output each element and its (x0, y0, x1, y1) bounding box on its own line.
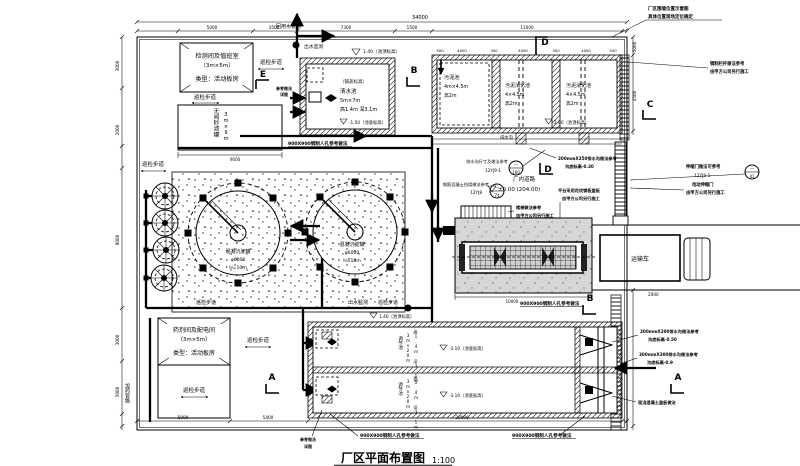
coag-tank2-name: 混凝沉淀罐 (339, 241, 364, 248)
title-text: 厂区平面布置图 (341, 450, 425, 465)
digest-pool2-size: 4×4.5m (566, 92, 586, 98)
svg-text:C: C (647, 100, 654, 110)
coag-tank1-h: H=10m (229, 265, 247, 271)
dewatering-machine (452, 242, 595, 273)
retractable-gate (615, 142, 626, 216)
svg-text:300mmX300排水沟做法参考: 300mmX300排水沟做法参考 (639, 351, 699, 358)
manhole-note-platform: 900X900钢制人孔参考做法 (520, 300, 584, 307)
svg-text:由甲方公司另行施工: 由甲方公司另行施工 (686, 189, 725, 196)
callout-ditch-ref: 排水沟尺寸及做法参考 12YJ9-1 — 100 (466, 150, 545, 175)
clear-pool-cover: （铺盖标高） (340, 78, 367, 85)
svg-text:钢制栏杆做法参考: 钢制栏杆做法参考 (710, 60, 745, 67)
reuse-pipe-label: 回用水管路 (276, 23, 301, 30)
dim-right-2: 4500 (632, 90, 637, 101)
sludge-pool-block: 污泥池 4m×4.5m 高2m 污泥消化池 4×4.5m 高2m 污泥消化池 4… (432, 48, 622, 133)
coagulation-tank-area: 混凝沉淀罐 φ6000 H=10m 混凝沉淀罐 φ6000 H=10m (172, 172, 409, 312)
clear-water-pool: 1.40（池顶标高） （铺盖标高） 清水池 5m×7m 高1.4m 深3.1m … (290, 48, 400, 135)
svg-text:由甲方公司另行施工: 由甲方公司另行施工 (710, 68, 749, 75)
svg-text:巡检步道: 巡检步道 (142, 160, 165, 168)
monitor-point-dot (293, 42, 300, 49)
section-marker-E: E 参考做法 详图 (256, 70, 292, 97)
coag-tank2-dia: φ6000 (345, 250, 360, 256)
section-marker-C: C (643, 100, 656, 119)
dosing-tank-icon (153, 237, 179, 263)
svg-text:D: D (541, 38, 548, 48)
walkway-label-4: 巡检步道 (196, 299, 216, 306)
walkway-label-1: 巡检步道 (192, 93, 219, 103)
section-marker-B-top: B (407, 66, 420, 86)
svg-text:电动伸缩门: 电动伸缩门 (692, 181, 714, 188)
walkway-label-7: 巡检步道 (245, 336, 271, 347)
svg-text:200mmX250排水沟做法参考: 200mmX250排水沟做法参考 (558, 155, 618, 162)
outlet-monitor-dot (405, 305, 412, 312)
dosing-tank-icon (152, 183, 178, 209)
section-marker-A-left: A (266, 373, 279, 393)
dosing-pipe-label: 加药管路 (124, 382, 130, 404)
transport-truck: 运输车 (600, 235, 710, 281)
svg-text:A: A (269, 373, 276, 383)
pool-top-elev: 2.00（池顶标高） (554, 119, 589, 126)
svg-text:沟底标高-0.9: 沟底标高-0.9 (647, 359, 673, 366)
digest-pool1-height: 高2m (505, 100, 518, 107)
coag-tank1-dia: φ6000 (231, 257, 246, 263)
chemical-room-type: 类型：活动板房 (173, 349, 215, 357)
note-electric-gate: 电动伸缩门 由甲方公司另行施工 (630, 181, 725, 196)
chemical-room-size: （3m×5m） (177, 336, 210, 343)
reg-tank2-name: 调节池 (398, 381, 403, 396)
sand-filter-size: 3m×9m (223, 112, 229, 142)
monitor-room-name: 检测间及值班室 (195, 52, 238, 60)
svg-text:平台采用花纹钢板盖板: 平台采用花纹钢板盖板 (558, 187, 601, 194)
sludge-pool-height: 高2m (444, 92, 457, 99)
svg-text:详图: 详图 (304, 443, 312, 449)
platform-dim: 10000 (506, 299, 519, 304)
svg-text:900X900钢制人孔参考做法: 900X900钢制人孔参考做法 (520, 300, 580, 307)
title-scale: 1:100 (432, 456, 455, 465)
svg-text:100: 100 (512, 170, 520, 175)
monitor-room-building: 检测间及值班室 （3m×5m） 类型：活动板房 (180, 43, 253, 92)
section-marker-A-right: A (671, 373, 684, 393)
digest-pool1-name: 污泥消化池 (505, 82, 530, 89)
digest-pool2-name: 污泥消化池 (566, 82, 591, 89)
walkway-label-3: 巡检步道 (141, 160, 166, 171)
reg-tank1-size: 3m×20m (406, 333, 411, 363)
dewatering-platform: 10000 (443, 218, 595, 304)
svg-text:900X900钢制人孔参考做法: 900X900钢制人孔参考做法 (288, 140, 348, 147)
digest-pool2-height: 高2m (566, 100, 579, 107)
reg2-bottom-elev: -3.10（池底标高） (449, 392, 486, 399)
sand-filter-dim: 9000 (230, 157, 241, 162)
dim-right-3: 2000 (648, 292, 659, 297)
drawing-canvas: 34000 5000 3500 7300 1500 11000 3000 200… (0, 0, 800, 466)
note-railing: 钢制栏杆做法参考 由甲方公司另行施工 (628, 60, 749, 75)
dim-pool-4: 4000 (518, 48, 528, 53)
dim-pool-1: 500 (436, 48, 444, 53)
digest-pool1-size: 4×4.5m (505, 92, 525, 98)
svg-text:伸缩门做法可参考: 伸缩门做法可参考 (685, 163, 721, 170)
detail-note-small-1b: 详图 (280, 91, 288, 97)
dim-top-total: 34000 (412, 15, 428, 21)
dim-pool-2: 4000 (457, 48, 467, 53)
outlet-monitor-label: 出水监测 (348, 299, 368, 306)
svg-text:900X900钢制人孔参考做法: 900X900钢制人孔参考做法 (360, 432, 420, 439)
access-road: 运输车 (592, 225, 800, 290)
callout-gate-num: 41 (749, 174, 755, 179)
dim-left-4: 3000 (115, 334, 120, 345)
detail-note-small-1: 参考做法 (275, 85, 292, 91)
sand-filter-name: 无阀砂滤罐 (212, 108, 219, 138)
svg-text:巡检步道: 巡检步道 (194, 93, 217, 101)
note-fence-location: 厂区围墙位置示意图 具体位置现场定位确定 (612, 5, 722, 37)
svg-text:74: 74 (494, 193, 500, 198)
svg-text:沟底标高-0.30: 沟底标高-0.30 (565, 163, 594, 170)
walkway-label-5: 巡检步道 (378, 299, 398, 306)
drain-channel-top: 排水沟 (432, 133, 622, 144)
svg-text:楼梯做法参考: 楼梯做法参考 (516, 204, 542, 211)
svg-text:B: B (587, 294, 594, 304)
svg-text:由甲方公司另行施工: 由甲方公司另行施工 (516, 212, 555, 219)
dim-pool-7: 500 (609, 48, 617, 53)
section-marker-D-mid: D (540, 163, 553, 175)
drain-ditch-label: 排水沟 (500, 134, 513, 141)
clear-pool-size: 5m×7m (340, 98, 360, 104)
note-ditch-200: 200mmX200排水沟做法参考 沟底标高-0.50 (612, 328, 700, 343)
dim-bottom-2: 5400 (263, 415, 274, 420)
sand-filter-tank: 无阀砂滤罐 3m×9m 9000 (178, 105, 282, 162)
dim-top-5: 11000 (520, 25, 534, 30)
dim-pool-3: 300 (490, 48, 498, 53)
svg-text:200mmX200排水沟做法参考: 200mmX200排水沟做法参考 (640, 328, 700, 335)
svg-text:12YJ8: 12YJ8 (470, 190, 482, 195)
monitor-room-type: 类型：活动板房 (195, 75, 238, 83)
svg-text:由甲方公司另行施工: 由甲方公司另行施工 (562, 195, 601, 202)
svg-text:参考做法: 参考做法 (299, 436, 316, 442)
dosing-tank-icon (152, 210, 178, 236)
coag-tank2-h: H=10m (343, 258, 361, 264)
reg-tank2-size: 3m×20m (406, 379, 411, 409)
svg-text:12YJ9-1: 12YJ9-1 (485, 168, 501, 173)
svg-text:巡检步道: 巡检步道 (247, 336, 270, 344)
manhole-note-mid: 900X900钢制人孔参考做法 (288, 140, 352, 147)
clear-pool-top-elev: 1.40（池顶标高） (363, 48, 400, 55)
svg-text:钢筋混凝土挡墙做法参考: 钢筋混凝土挡墙做法参考 (443, 181, 489, 188)
clear-pool-dims: 高1.4m 深3.1m (340, 106, 377, 113)
dim-top-1: 5000 (207, 25, 218, 30)
svg-text:现浇混凝土盖板做法: 现浇混凝土盖板做法 (638, 399, 677, 406)
reg-top-elev: 1.40（池顶标高） (379, 313, 414, 320)
coag-tank1-name: 混凝沉淀罐 (225, 248, 250, 255)
dim-left-3: 9000 (115, 234, 120, 245)
dosing-tank-icon (151, 265, 177, 291)
svg-text:A: A (675, 373, 682, 383)
svg-text:厂区围墙位置示意图: 厂区围墙位置示意图 (648, 5, 689, 12)
chemical-room-building: 药剂间及配电间 （3m×5m） 类型：活动板房 巡检步道 (158, 318, 230, 418)
dim-left-1: 3000 (115, 60, 120, 71)
note-platform-cover: 平台采用花纹钢板盖板 由甲方公司另行施工 (558, 187, 601, 218)
road-label: 厂内道路 (513, 175, 536, 183)
monitor-room-size: （3m×5m） (200, 62, 233, 69)
sludge-pool-size: 4m×4.5m (444, 84, 468, 90)
stairs (461, 206, 511, 218)
outlet-monitor-top: 出水监测 (304, 43, 323, 50)
drawing-title: 厂区平面布置图 1:100 (334, 450, 455, 465)
clear-pool-bottom-elev: -1.50（池底标高） (349, 119, 386, 126)
dim-left-5: 5000 (115, 386, 120, 397)
clear-pool-name: 清水池 (340, 87, 357, 95)
svg-text:沟底标高-0.50: 沟底标高-0.50 (648, 336, 677, 343)
note-ditch-300: 300mmX300排水沟做法参考 沟底标高-0.9 (620, 351, 699, 366)
road-elev: ±0.00 (204.00) (498, 187, 540, 193)
regulating-tank-block: 调节池 3m×20m 高1.4m 深3.1m 调节池 3m×20m 高1.4m … (308, 313, 622, 429)
svg-text:巡检步道: 巡检步道 (260, 58, 283, 66)
reg-tank1-name: 调节池 (398, 335, 403, 350)
svg-text:E: E (260, 70, 266, 80)
dim-left-2: 2000 (115, 124, 120, 135)
callout-gate-detail: 伸缩门做法可参考 12YJ9-1 — 41 (630, 163, 759, 180)
plant-layout-drawing: 34000 5000 3500 7300 1500 11000 3000 200… (0, 0, 800, 466)
dim-pool-6: 4000 (581, 48, 591, 53)
walkway-label-2: 巡检步道 (258, 58, 284, 69)
sludge-pool-name: 污泥池 (444, 73, 460, 81)
reg1-bottom-elev: -3.10（池底标高） (449, 345, 486, 352)
walkway-label-6: 巡检步道 (183, 386, 206, 394)
reg-tank2-dims: 高1.4m 深3.1m (414, 375, 419, 430)
dim-top-4: 1500 (407, 25, 418, 30)
dim-top-3: 7300 (341, 25, 352, 30)
svg-text:排水沟尺寸及做法参考: 排水沟尺寸及做法参考 (466, 158, 508, 165)
chemical-room-name: 药剂间及配电间 (173, 326, 215, 334)
svg-text:B: B (411, 66, 418, 76)
truck-label: 运输车 (631, 255, 649, 263)
svg-text:—: — (514, 162, 518, 167)
dim-right-1: 5000 (632, 41, 637, 52)
callout-gate-top: — (750, 166, 754, 171)
callout-wall-ref: 钢筋混凝土挡墙做法参考 12YJ8 — 74 (443, 181, 504, 198)
note-stairs: 楼梯做法参考 由甲方公司另行施工 (508, 204, 555, 219)
svg-text:具体位置现场定位确定: 具体位置现场定位确定 (648, 13, 693, 20)
dim-pool-5: 300 (552, 48, 560, 53)
